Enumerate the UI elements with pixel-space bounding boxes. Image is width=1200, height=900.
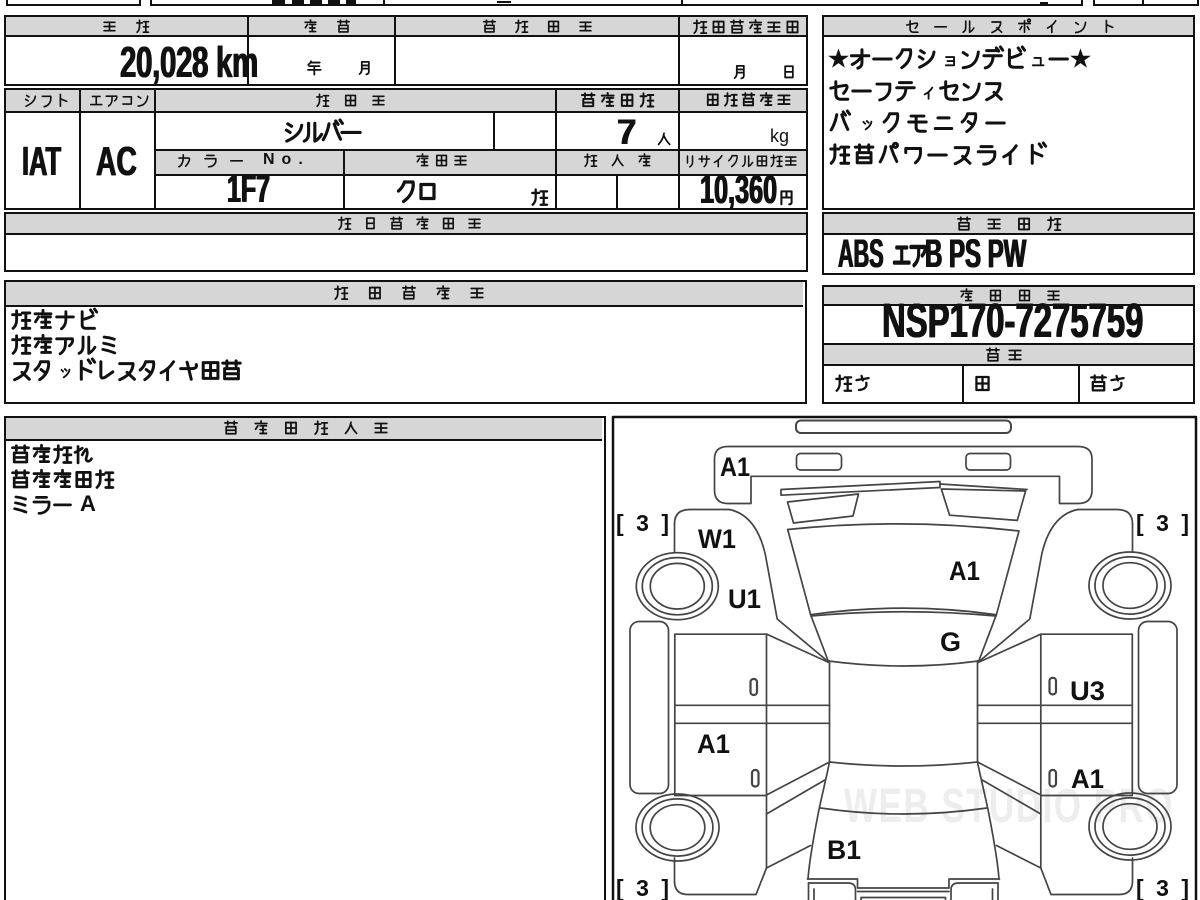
svg-text:A1: A1 xyxy=(1071,764,1104,794)
svg-text:[ 3 ]: [ 3 ] xyxy=(1136,875,1189,900)
svg-text:A1: A1 xyxy=(720,452,750,482)
svg-text:B1: B1 xyxy=(827,835,861,865)
svg-text:U1: U1 xyxy=(728,584,761,614)
svg-text:[ 3 ]: [ 3 ] xyxy=(1136,510,1189,536)
svg-text:A1: A1 xyxy=(697,729,730,759)
svg-text:G: G xyxy=(940,627,961,657)
svg-text:U3: U3 xyxy=(1070,676,1105,706)
svg-text:[ 3 ]: [ 3 ] xyxy=(616,875,669,900)
svg-text:A1: A1 xyxy=(949,556,980,586)
svg-text:[ 3 ]: [ 3 ] xyxy=(616,510,669,536)
svg-text:W1: W1 xyxy=(698,524,736,554)
